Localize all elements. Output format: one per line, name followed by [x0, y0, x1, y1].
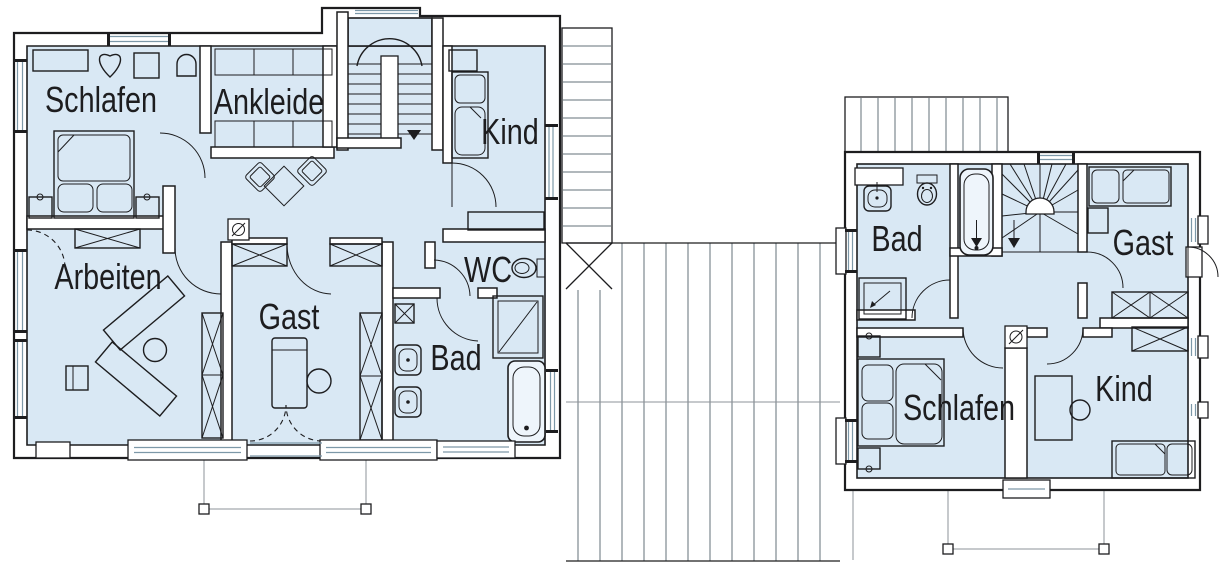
room-label-wc: WC — [464, 249, 512, 291]
stairwell-floor — [348, 18, 432, 46]
room-label-gast-right: Gast — [1113, 222, 1174, 264]
chimney-icon — [1005, 326, 1027, 348]
chimney-icon — [228, 219, 249, 240]
right-floor-plan — [836, 152, 1218, 498]
left-floor-plan — [14, 8, 560, 460]
room-label-bad-right: Bad — [871, 218, 922, 260]
room-label-ankleide: Ankleide — [214, 81, 324, 123]
balcony-decking — [562, 28, 612, 243]
pergola-left — [199, 460, 371, 514]
room-label-schlafen-right: Schlafen — [903, 387, 1015, 429]
floor-plan-canvas: Schlafen Ankleide Kind Arbeiten Gast WC … — [0, 0, 1219, 564]
room-label-gast-left: Gast — [259, 296, 320, 338]
room-label-kind-left: Kind — [481, 111, 539, 153]
room-label-schlafen-left: Schlafen — [45, 79, 157, 121]
room-label-arbeiten: Arbeiten — [54, 256, 161, 298]
room-label-bad-left: Bad — [430, 337, 481, 379]
entrance-steps-hatch — [845, 97, 1008, 152]
room-label-kind-right: Kind — [1095, 368, 1153, 410]
bathtub-icon — [960, 169, 993, 255]
bathtub-icon — [508, 361, 545, 442]
floor-plan-drawing — [0, 0, 1219, 564]
pergola-right — [853, 490, 1109, 560]
terrace-decking — [566, 243, 840, 561]
